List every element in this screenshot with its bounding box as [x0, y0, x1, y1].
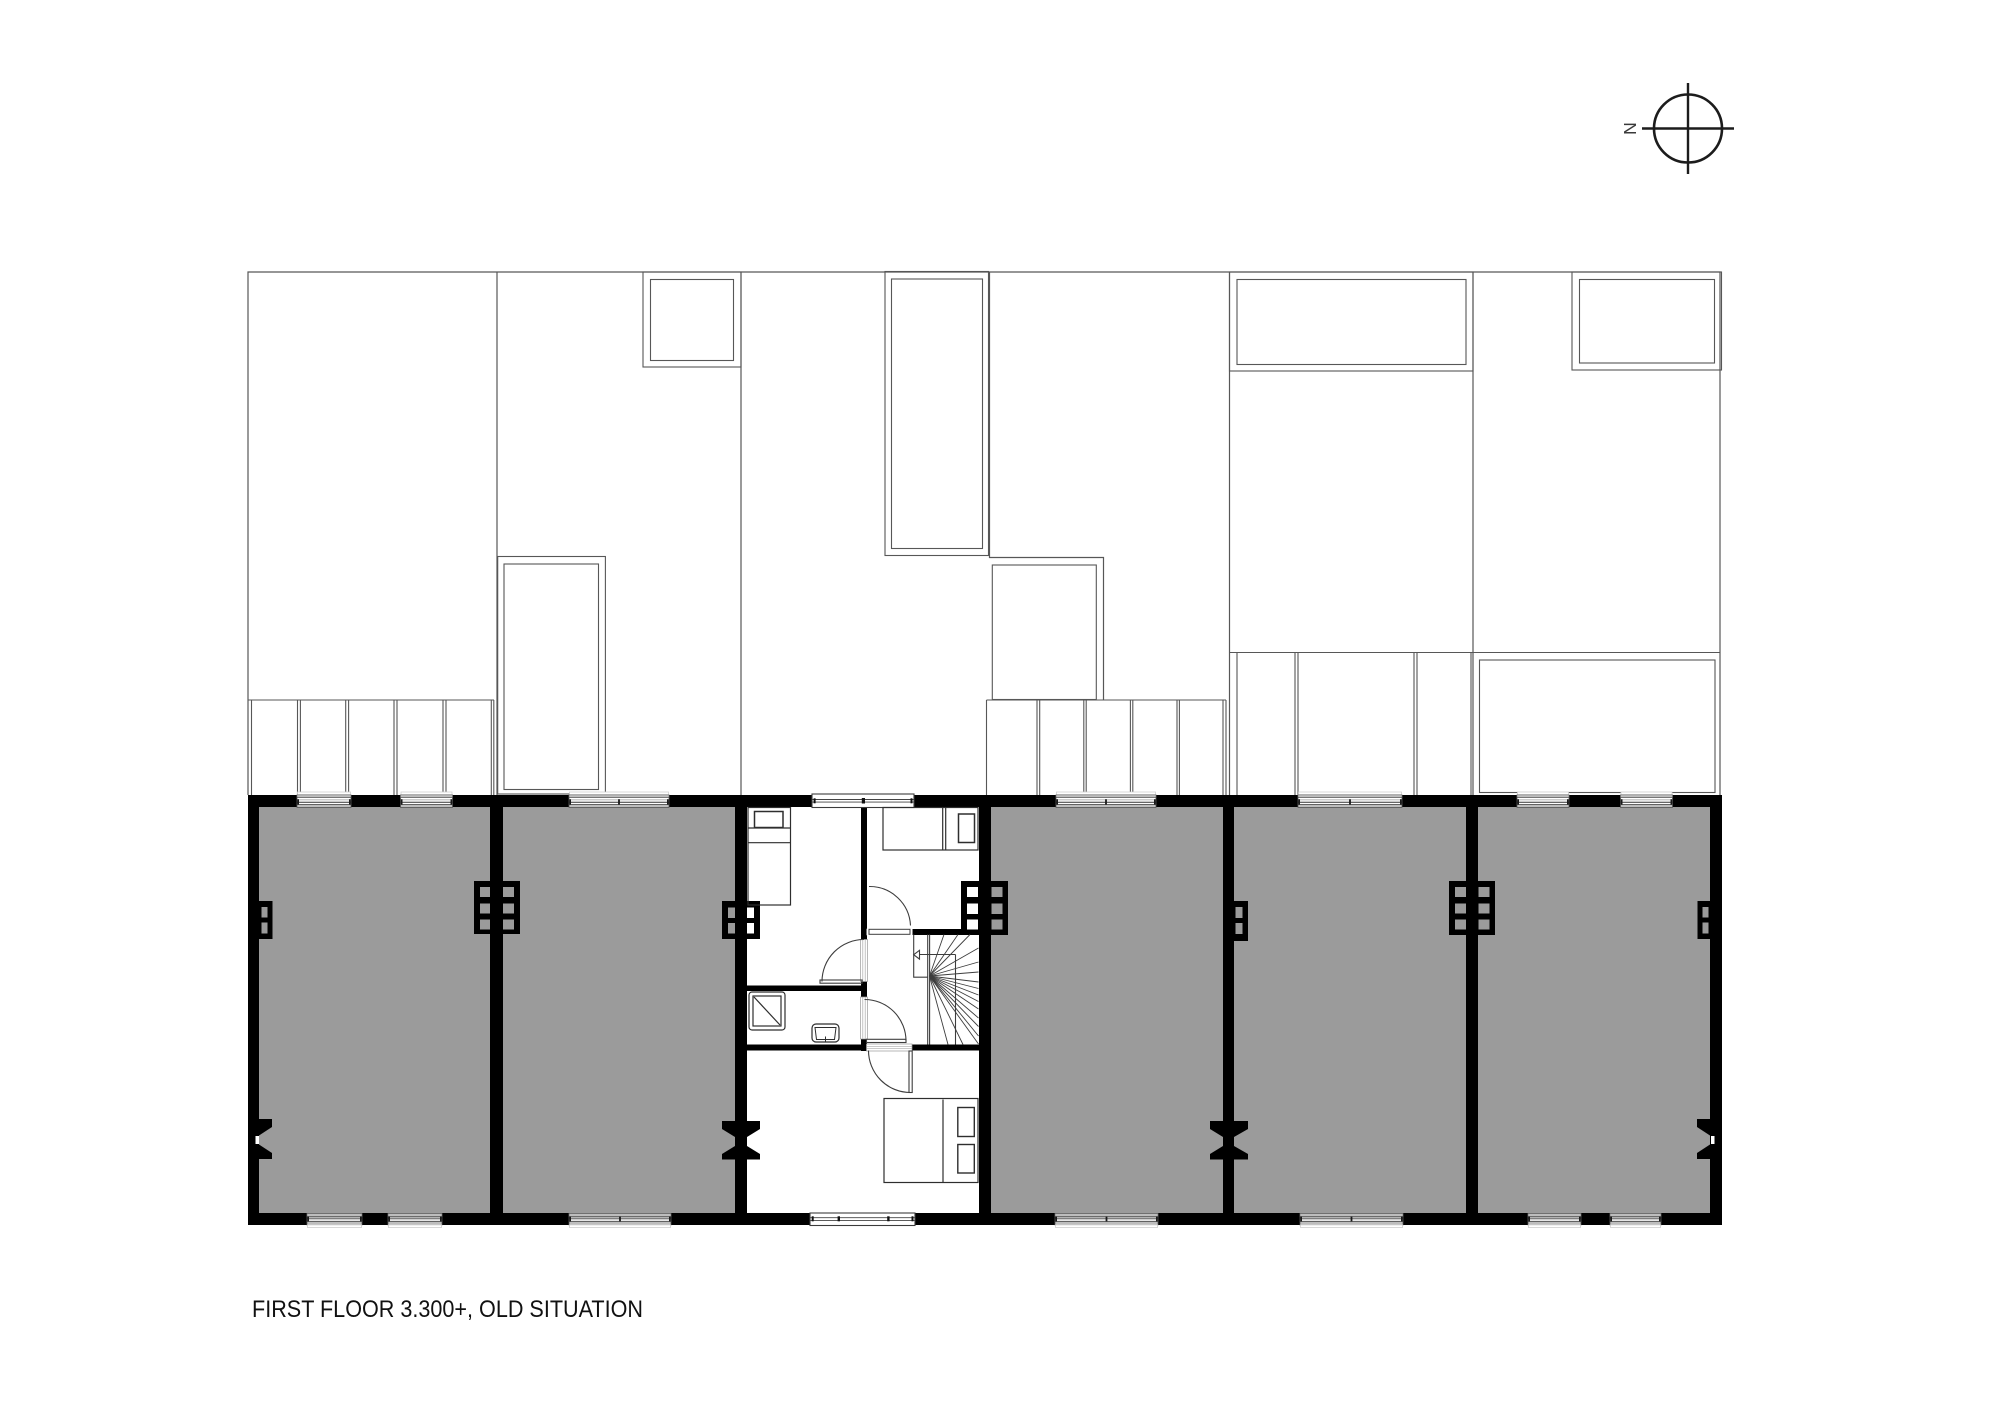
- svg-text:FIRST FLOOR 3.300+, OLD SITUAT: FIRST FLOOR 3.300+, OLD SITUATION: [252, 1296, 643, 1323]
- svg-text:N: N: [1620, 122, 1640, 135]
